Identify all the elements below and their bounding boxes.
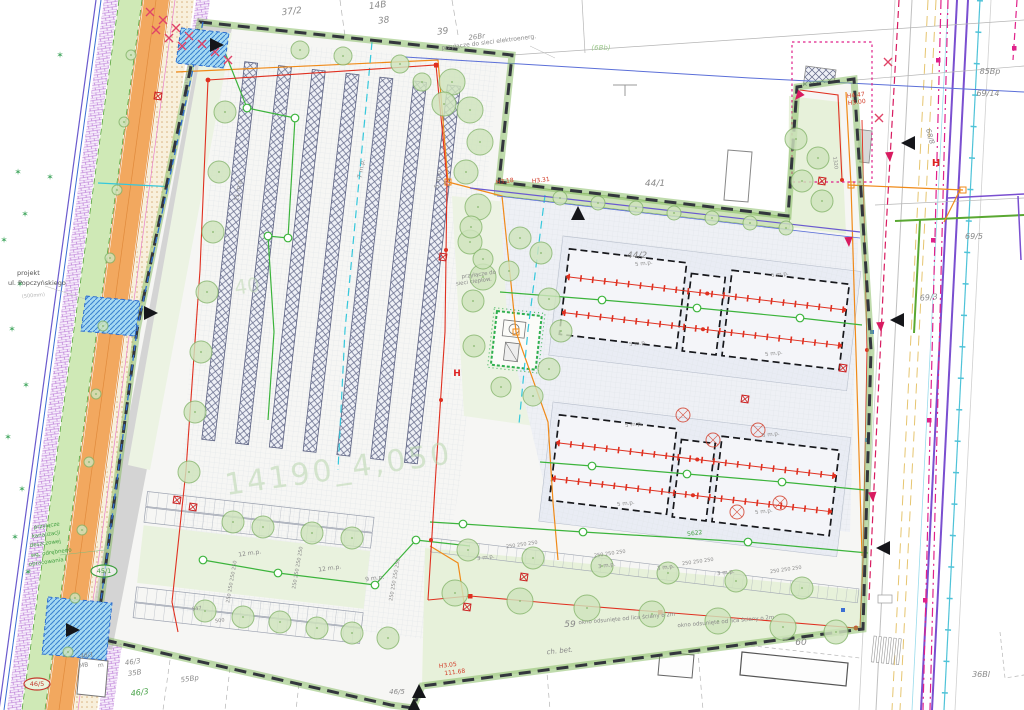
plan-label: 44/2: [627, 251, 647, 261]
plan-label: MB: [79, 661, 89, 669]
plan-label: 68/8: [924, 128, 936, 146]
building-44-1: [724, 150, 752, 202]
plan-label: 85Bp: [980, 67, 1001, 76]
conifer-icon: ✶: [46, 173, 54, 183]
plan-label: 45/1: [97, 567, 112, 575]
entrance-arrow-icon: [901, 136, 915, 150]
plan-label: 55Bp: [180, 674, 200, 685]
plan-label: 14B: [368, 0, 387, 12]
magenta-nodes: [923, 46, 1017, 603]
playground: [488, 308, 545, 373]
conifer-icon: ✶: [56, 51, 64, 61]
plan-label: 69/3: [919, 292, 938, 303]
plan-label: 46/5: [389, 688, 405, 696]
cable-arrow-icon: [876, 322, 885, 333]
plan-label: 59: [564, 620, 576, 630]
plan-label: 46/5: [30, 680, 45, 688]
plan-label: przyłącze do sieci elektroenerg.: [441, 33, 537, 52]
plan-label: H: [932, 158, 940, 169]
entrance-middle: [81, 296, 140, 336]
plan-label: 40: [233, 272, 262, 299]
plan-label: 69/14: [976, 89, 999, 98]
t-symbol: [613, 85, 637, 96]
crosswalk: [871, 636, 901, 665]
conifer-icon: ✶: [21, 210, 29, 220]
conifer-icon: ✶: [8, 325, 16, 335]
plan-label: 60: [795, 638, 807, 648]
entrance-arrow-icon: [890, 313, 904, 327]
plan-label: H: [453, 369, 461, 379]
cabinet: [878, 595, 892, 603]
conifer-icon: ✶: [11, 533, 19, 543]
plan-label: 36Bl: [972, 670, 991, 679]
plan-label: 44/1: [645, 179, 665, 189]
plan-label: 46/3: [124, 657, 141, 667]
plan-label: (6Bb): [591, 44, 610, 52]
plan-label: (500mm): [22, 292, 46, 300]
conifer-icon: ✶: [0, 236, 8, 246]
conifer-icon: ✶: [22, 381, 30, 391]
entrance-arrow-icon: [876, 541, 890, 555]
right-street: [859, 0, 991, 710]
plan-label: ul. Popczyńskiego: [8, 279, 66, 287]
plan-label: 46/3: [130, 687, 149, 698]
plan-label: 35B: [127, 668, 142, 678]
building-60: [740, 652, 848, 686]
plan-label: H3.00: [848, 98, 867, 107]
survey-cross-icon: [884, 58, 892, 66]
conifer-icon: ✶: [4, 433, 12, 443]
plan-label: m: [97, 662, 104, 670]
site-development-plan: ✶✶✶✶✶✶✶✶✶✶✶✶ 37/214B383926Brprzyłącze do…: [0, 0, 1024, 710]
survey-cross-icon: [875, 114, 883, 122]
plan-label: 69/5: [965, 232, 983, 241]
plan-label: 38: [377, 15, 390, 26]
site-plan-canvas: ✶✶✶✶✶✶✶✶✶✶✶✶ 37/214B383926Brprzyłącze do…: [0, 0, 1024, 710]
conifer-icon: ✶: [18, 485, 26, 495]
plan-label: projekt: [17, 269, 40, 277]
conifer-icon: ✶: [24, 568, 32, 578]
conifer-icon: ✶: [14, 168, 22, 178]
plan-label: H3.31: [532, 176, 551, 185]
plan-label: 39: [436, 26, 449, 37]
plan-label: 37/2: [281, 6, 303, 18]
